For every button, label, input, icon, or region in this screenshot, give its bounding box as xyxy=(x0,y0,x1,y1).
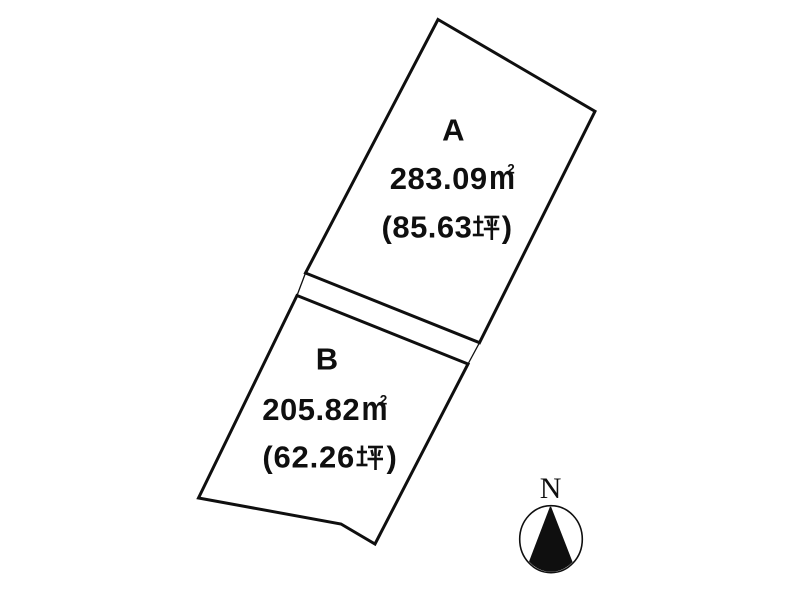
svg-text:A: A xyxy=(442,113,464,148)
svg-text:N: N xyxy=(540,472,562,505)
svg-text:(62.26: (62.26 xyxy=(262,440,355,475)
svg-text:(85.63: (85.63 xyxy=(382,210,473,245)
svg-text:): ) xyxy=(387,440,397,475)
svg-text:): ) xyxy=(502,210,512,245)
svg-text:2: 2 xyxy=(380,393,388,408)
svg-text:283.09: 283.09 xyxy=(390,161,488,196)
svg-text:205.82: 205.82 xyxy=(262,392,360,427)
svg-text:B: B xyxy=(316,342,338,377)
svg-text:2: 2 xyxy=(507,162,515,177)
